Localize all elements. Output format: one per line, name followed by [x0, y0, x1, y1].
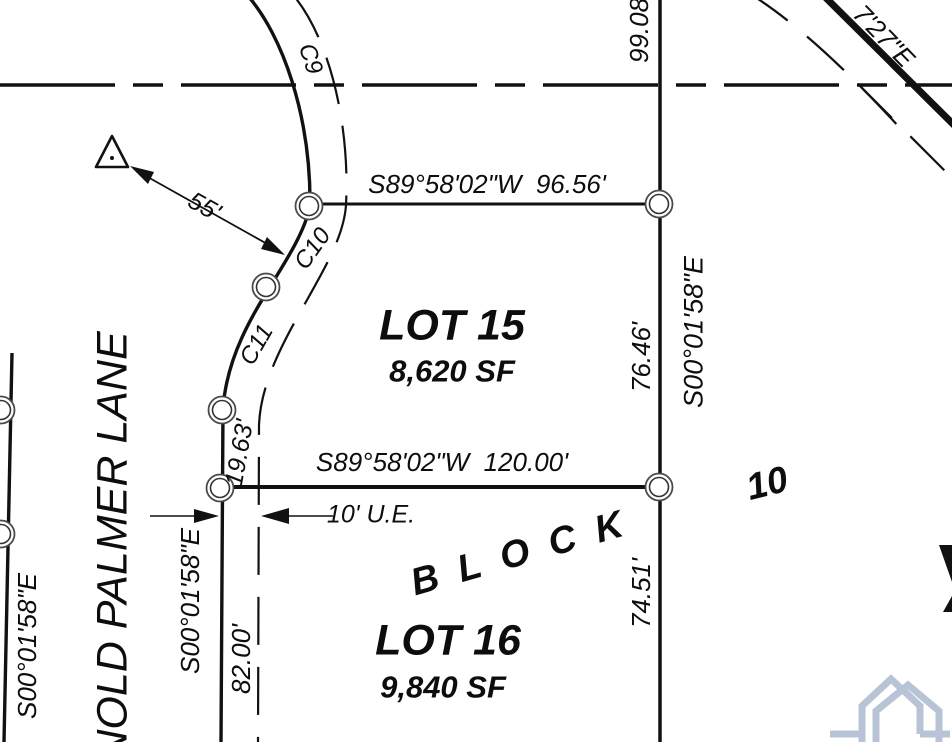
bearing-label-lot15-north: S89°58'02"W 96.56'	[368, 171, 606, 197]
bearing-label-street-east-row: S00°01'58"E	[177, 528, 203, 674]
utility-easement-label: 10' U.E.	[327, 503, 415, 528]
corner-marker	[646, 474, 673, 501]
distance-label-99-08: 99.08'	[626, 0, 652, 63]
bearing-label-west-row: S00°01'58"E	[14, 573, 40, 719]
ue-dimension-arrow-left	[150, 509, 219, 523]
distance-label-74-51: 74.51'	[628, 558, 654, 628]
distance-label-82-00: 82.00'	[228, 624, 254, 694]
lot15-area-label: 8,620 SF	[389, 356, 515, 387]
lot16-name-label: LOT 16	[375, 620, 521, 663]
street-name-label: NOLD PALMER LANE	[92, 331, 135, 742]
corner-marker	[296, 193, 323, 220]
utility-easement-dashed-line	[258, 0, 347, 742]
lot15-name-label: LOT 15	[379, 305, 525, 348]
bearing-label-east-line: S00°01'58"E	[681, 256, 708, 408]
diagonal-road-dashed-line-lower	[858, 84, 952, 178]
corner-marker	[646, 191, 673, 218]
homes-logo-icon	[830, 679, 950, 742]
ue-dimension-arrow-right	[261, 508, 333, 524]
plat-map-canvas: S89°58'02"W 96.56' S89°58'02"W 120.00' 9…	[0, 0, 952, 742]
lot16-area-label: 9,840 SF	[380, 672, 506, 703]
bearing-label-lot15-south: S89°58'02"W 120.00'	[316, 449, 568, 475]
clipped-text-fragment	[939, 545, 952, 612]
distance-label-76-46: 76.46'	[628, 322, 654, 392]
block-number-label: 10	[743, 460, 792, 506]
corner-marker	[253, 274, 280, 301]
survey-triangle-icon	[96, 136, 128, 167]
corner-marker	[0, 521, 15, 548]
